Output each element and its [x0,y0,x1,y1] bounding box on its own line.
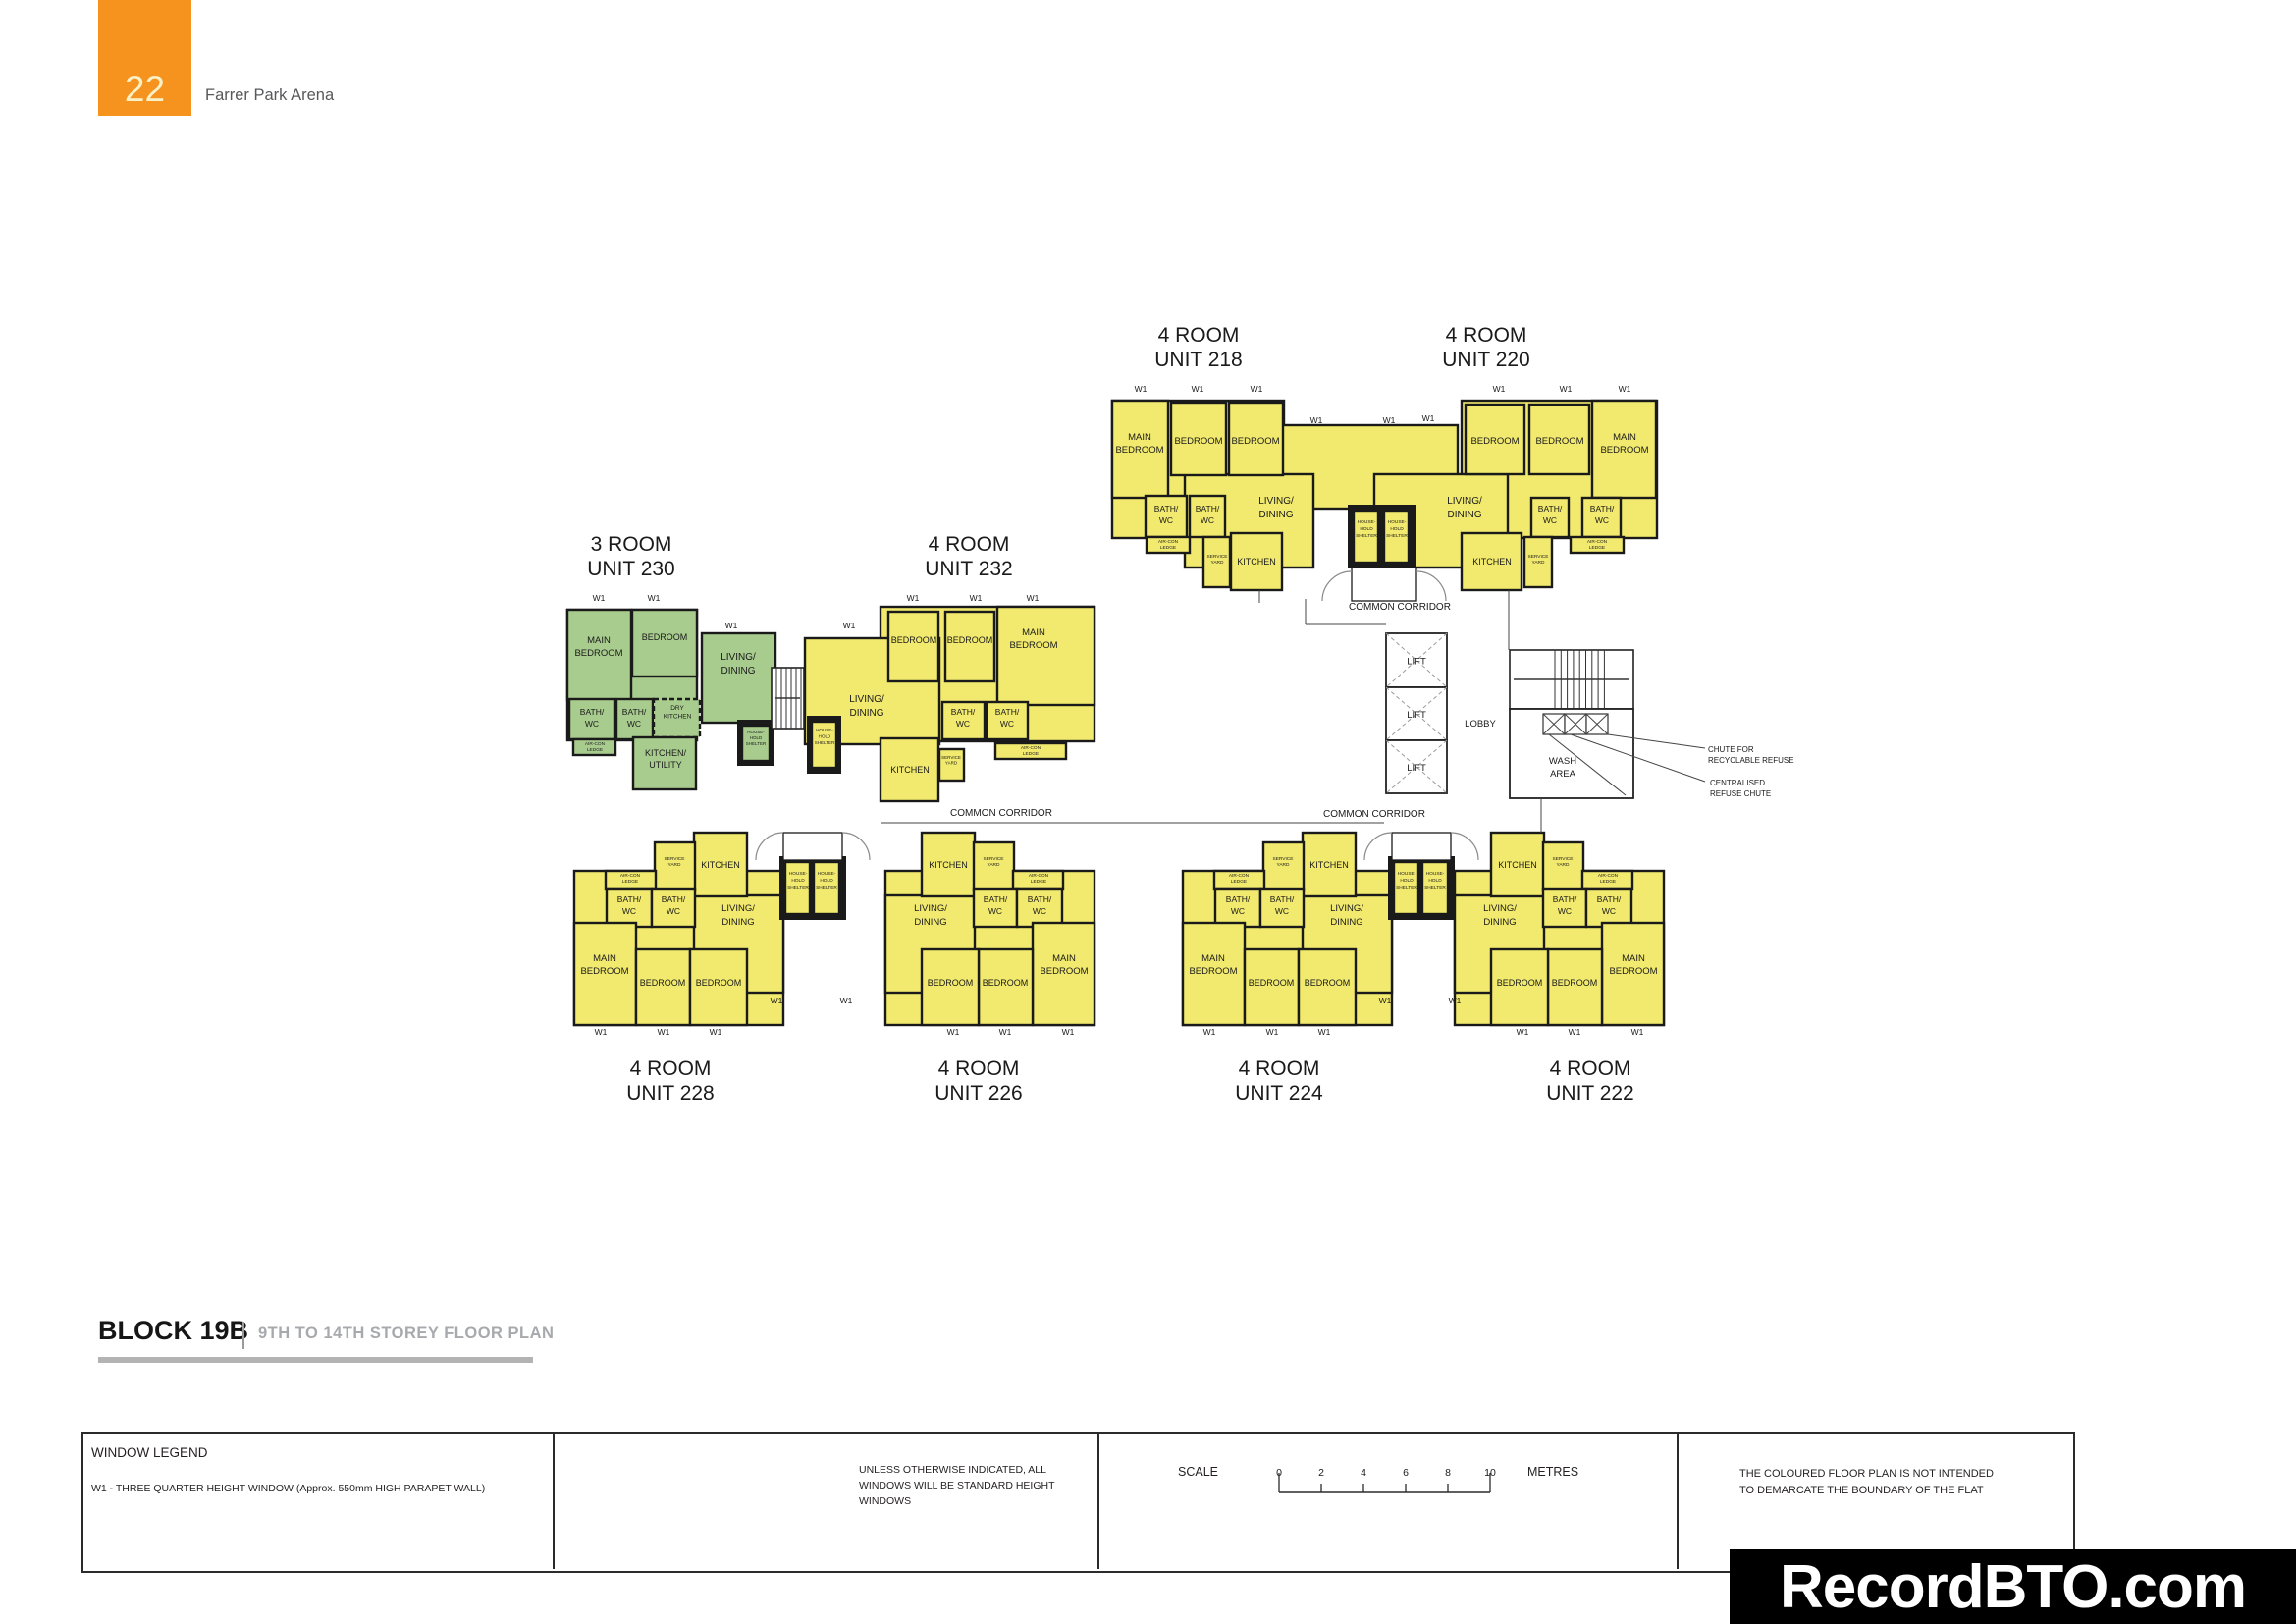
svg-text:CHUTE FOR: CHUTE FOR [1708,745,1754,754]
svg-text:YARD: YARD [1277,862,1291,868]
svg-text:UNIT 220: UNIT 220 [1442,349,1530,371]
svg-text:WC: WC [1201,515,1214,525]
legend-divider-1 [553,1432,555,1569]
svg-text:W1: W1 [1449,996,1462,1005]
svg-text:KITCHEN: KITCHEN [1309,860,1349,870]
window-legend-w1: W1 - THREE QUARTER HEIGHT WINDOW (Approx… [91,1483,485,1494]
svg-text:SHELTER: SHELTER [1356,533,1377,539]
boundary-note-line2: TO DEMARCATE THE BOUNDARY OF THE FLAT [1739,1485,1984,1496]
svg-text:HOUSE-: HOUSE- [816,728,833,732]
svg-text:W1: W1 [970,593,983,603]
svg-text:MAIN: MAIN [593,953,616,964]
svg-text:SHELTER: SHELTER [1386,533,1408,539]
svg-text:LEDGE: LEDGE [1589,545,1605,551]
project-name: Farrer Park Arena [205,86,334,105]
svg-text:BEDROOM: BEDROOM [1600,445,1648,456]
svg-text:BEDROOM: BEDROOM [696,978,742,988]
svg-text:KITCHEN/: KITCHEN/ [645,748,687,758]
svg-text:BEDROOM: BEDROOM [1189,966,1237,977]
svg-text:HOUSE-: HOUSE- [1398,871,1416,877]
floor-plan-page: 22 Farrer Park Arena LIVING/DININGMAINBE… [0,0,2296,1624]
svg-text:UNIT 230: UNIT 230 [587,558,675,580]
svg-text:UNIT 226: UNIT 226 [934,1082,1023,1105]
svg-text:BEDROOM: BEDROOM [1497,978,1543,988]
svg-text:WC: WC [1231,906,1245,916]
svg-text:BEDROOM: BEDROOM [1470,436,1519,447]
svg-text:WC: WC [1159,515,1173,525]
title-divider [242,1322,244,1349]
svg-text:COMMON CORRIDOR: COMMON CORRIDOR [950,808,1052,819]
svg-text:SHELTER: SHELTER [787,885,809,891]
svg-text:WC: WC [622,906,636,916]
svg-text:BATH/: BATH/ [1553,894,1577,904]
svg-text:HOLD: HOLD [1360,526,1373,532]
svg-text:W1: W1 [593,593,606,603]
svg-text:LEDGE: LEDGE [1231,879,1247,885]
block-title: BLOCK 19B [98,1316,248,1346]
svg-text:W1: W1 [999,1027,1012,1037]
svg-text:W1: W1 [725,621,738,630]
svg-text:AIR-CON: AIR-CON [1587,539,1608,545]
svg-text:LIVING/: LIVING/ [914,903,947,914]
svg-text:UNIT 222: UNIT 222 [1546,1082,1634,1105]
svg-text:LIVING/: LIVING/ [1483,903,1517,914]
svg-text:YARD: YARD [945,761,958,766]
svg-text:BATH/: BATH/ [622,707,647,717]
svg-text:DINING: DINING [850,708,884,719]
svg-text:W1: W1 [1251,384,1263,394]
svg-text:BATH/: BATH/ [1028,894,1052,904]
svg-text:BATH/: BATH/ [1590,504,1615,514]
svg-text:W1: W1 [1310,415,1323,425]
svg-text:LEDGE: LEDGE [587,747,603,753]
svg-text:MAIN: MAIN [1128,432,1151,443]
svg-text:SHELTER: SHELTER [816,885,837,891]
svg-text:MAIN: MAIN [1622,953,1645,964]
svg-text:W1: W1 [771,996,783,1005]
svg-text:HOLD: HOLD [1400,878,1414,884]
svg-text:WC: WC [1033,906,1046,916]
svg-text:W1: W1 [1422,413,1435,423]
svg-text:SERVICE: SERVICE [1207,554,1228,560]
svg-text:LEDGE: LEDGE [1160,545,1176,551]
svg-text:WC: WC [627,719,641,729]
svg-text:LEDGE: LEDGE [1031,879,1046,885]
svg-text:BEDROOM: BEDROOM [1174,436,1222,447]
svg-text:BATH/: BATH/ [1597,894,1622,904]
svg-text:KITCHEN: KITCHEN [1498,860,1537,870]
svg-text:LIFT: LIFT [1407,657,1426,668]
svg-text:WASH: WASH [1549,756,1576,767]
svg-text:HOUSE-: HOUSE- [1358,519,1376,525]
svg-text:SERVICE: SERVICE [665,856,685,862]
legend-divider-3 [1677,1432,1679,1569]
svg-text:HOUSE-: HOUSE- [818,871,836,877]
watermark-text: RecordBTO.com [1780,1552,2246,1622]
svg-text:BATH/: BATH/ [580,707,605,717]
scale-label: SCALE [1178,1465,1218,1479]
svg-text:YARD: YARD [1532,560,1546,566]
svg-text:W1: W1 [1560,384,1573,394]
svg-text:LEDGE: LEDGE [622,879,638,885]
svg-text:AIR-CON: AIR-CON [1598,873,1619,879]
svg-text:W1: W1 [843,621,856,630]
svg-text:HOLD: HOLD [819,734,831,739]
svg-text:BATH/: BATH/ [984,894,1008,904]
svg-text:WC: WC [1543,515,1557,525]
svg-text:W1: W1 [1379,996,1392,1005]
svg-text:SHELTER: SHELTER [1396,885,1417,891]
svg-text:BEDROOM: BEDROOM [1249,978,1295,988]
window-legend-heading: WINDOW LEGEND [91,1445,208,1460]
svg-text:UNIT 232: UNIT 232 [925,558,1013,580]
svg-text:SERVICE: SERVICE [941,755,961,760]
svg-text:BEDROOM: BEDROOM [983,978,1029,988]
svg-text:WC: WC [1275,906,1289,916]
svg-text:HOLD: HOLD [1390,526,1404,532]
svg-text:4 ROOM: 4 ROOM [630,1057,712,1080]
svg-text:W1: W1 [1631,1027,1644,1037]
svg-text:LEDGE: LEDGE [1600,879,1616,885]
svg-text:WC: WC [956,719,970,729]
svg-text:LIFT: LIFT [1407,763,1426,774]
svg-text:COMMON CORRIDOR: COMMON CORRIDOR [1323,809,1425,820]
svg-text:WC: WC [1595,515,1609,525]
svg-text:BEDROOM: BEDROOM [947,635,993,645]
svg-text:KITCHEN: KITCHEN [701,860,740,870]
svg-text:HOLD: HOLD [820,878,833,884]
svg-text:4 ROOM: 4 ROOM [1446,324,1527,347]
svg-text:HOLD: HOLD [791,878,805,884]
svg-text:BEDROOM: BEDROOM [640,978,686,988]
svg-text:SHELTER: SHELTER [815,740,835,745]
svg-text:REFUSE CHUTE: REFUSE CHUTE [1710,789,1771,798]
svg-text:BEDROOM: BEDROOM [1305,978,1351,988]
svg-text:W1: W1 [1493,384,1506,394]
svg-text:BEDROOM: BEDROOM [1115,445,1163,456]
svg-text:W1: W1 [1203,1027,1216,1037]
svg-text:4 ROOM: 4 ROOM [929,533,1010,556]
svg-text:DRY: DRY [670,705,684,712]
svg-text:AREA: AREA [1550,769,1576,780]
svg-text:AIR-CON: AIR-CON [620,873,641,879]
svg-text:DINING: DINING [1483,917,1516,928]
svg-text:KITCHEN: KITCHEN [929,860,968,870]
page-number: 22 [98,69,191,110]
svg-text:HOUSE-: HOUSE- [747,730,765,734]
svg-text:LIFT: LIFT [1407,710,1426,721]
svg-text:LIVING/: LIVING/ [721,903,755,914]
svg-text:LIVING/: LIVING/ [1258,496,1294,507]
svg-text:4 ROOM: 4 ROOM [1158,324,1240,347]
svg-text:AIR-CON: AIR-CON [1158,539,1179,545]
svg-text:BEDROOM: BEDROOM [580,966,628,977]
legend-divider-2 [1097,1432,1099,1569]
svg-text:HOUSE-: HOUSE- [789,871,808,877]
windows-note-line2: WINDOWS WILL BE STANDARD HEIGHT [859,1480,1055,1491]
svg-text:LIVING/: LIVING/ [1447,496,1482,507]
svg-text:BEDROOM: BEDROOM [574,648,622,659]
windows-note-line1: UNLESS OTHERWISE INDICATED, ALL [859,1464,1046,1476]
svg-text:BATH/: BATH/ [951,707,976,717]
svg-text:DINING: DINING [721,666,756,677]
svg-text:LIVING/: LIVING/ [849,694,884,705]
svg-text:BEDROOM: BEDROOM [642,632,688,642]
svg-text:HOUSE-: HOUSE- [1388,519,1407,525]
svg-text:MAIN: MAIN [1613,432,1636,443]
svg-text:AIR-CON: AIR-CON [1029,873,1049,879]
svg-text:BATH/: BATH/ [617,894,642,904]
svg-text:W1: W1 [658,1027,670,1037]
svg-text:4 ROOM: 4 ROOM [1550,1057,1631,1080]
svg-text:BEDROOM: BEDROOM [928,978,974,988]
svg-text:4 ROOM: 4 ROOM [938,1057,1020,1080]
svg-text:W1: W1 [1027,593,1040,603]
svg-text:YARD: YARD [668,862,682,868]
windows-note-line3: WINDOWS [859,1495,911,1507]
svg-text:UNIT 218: UNIT 218 [1154,349,1243,371]
svg-text:CENTRALISED: CENTRALISED [1710,779,1765,787]
svg-text:BEDROOM: BEDROOM [1009,640,1057,651]
svg-text:W1: W1 [1266,1027,1279,1037]
svg-text:BEDROOM: BEDROOM [1231,436,1279,447]
svg-text:DINING: DINING [914,917,946,928]
svg-text:BATH/: BATH/ [995,707,1020,717]
svg-text:W1: W1 [710,1027,722,1037]
svg-text:SERVICE: SERVICE [984,856,1004,862]
svg-text:BATH/: BATH/ [1196,504,1220,514]
svg-text:BEDROOM: BEDROOM [1040,966,1088,977]
svg-text:YARD: YARD [1557,862,1571,868]
svg-text:W1: W1 [1192,384,1204,394]
svg-text:BATH/: BATH/ [1154,504,1179,514]
svg-text:BEDROOM: BEDROOM [1609,966,1657,977]
svg-text:BEDROOM: BEDROOM [1552,978,1598,988]
svg-text:SERVICE: SERVICE [1553,856,1574,862]
svg-text:MAIN: MAIN [1052,953,1076,964]
svg-text:WC: WC [667,906,680,916]
svg-text:KITCHEN: KITCHEN [890,765,930,775]
svg-text:COMMON CORRIDOR: COMMON CORRIDOR [1349,602,1451,613]
svg-text:DINING: DINING [721,917,754,928]
floor-plan-drawing: LIVING/DININGMAINBEDROOMBEDROOMBEDROOMBA… [0,0,2296,1624]
svg-text:WC: WC [1602,906,1616,916]
svg-text:SERVICE: SERVICE [1273,856,1294,862]
svg-text:LEDGE: LEDGE [1023,751,1039,757]
svg-text:W1: W1 [648,593,661,603]
svg-text:WC: WC [988,906,1002,916]
svg-text:LOBBY: LOBBY [1465,719,1496,730]
svg-text:BATH/: BATH/ [1270,894,1295,904]
svg-text:BATH/: BATH/ [1226,894,1251,904]
title-underline [98,1357,533,1363]
svg-text:W1: W1 [1135,384,1148,394]
boundary-note-line1: THE COLOURED FLOOR PLAN IS NOT INTENDED [1739,1468,1994,1480]
svg-text:BEDROOM: BEDROOM [891,635,937,645]
svg-text:DINING: DINING [1448,510,1482,520]
svg-text:WC: WC [1558,906,1572,916]
svg-text:LIVING/: LIVING/ [1330,903,1363,914]
svg-text:W1: W1 [595,1027,608,1037]
metres-label: METRES [1527,1465,1578,1479]
svg-text:RECYCLABLE REFUSE: RECYCLABLE REFUSE [1708,756,1794,765]
svg-text:BATH/: BATH/ [662,894,686,904]
svg-text:DINING: DINING [1330,917,1362,928]
svg-text:HOUSE-: HOUSE- [1426,871,1445,877]
svg-text:AIR-CON: AIR-CON [1021,745,1041,751]
svg-text:W1: W1 [1619,384,1631,394]
svg-text:4 ROOM: 4 ROOM [1239,1057,1320,1080]
svg-text:W1: W1 [1569,1027,1581,1037]
svg-text:DINING: DINING [1259,510,1294,520]
svg-text:BEDROOM: BEDROOM [1535,436,1583,447]
svg-text:W1: W1 [947,1027,960,1037]
svg-text:KITCHEN: KITCHEN [664,714,692,721]
svg-text:SERVICE: SERVICE [1528,554,1549,560]
svg-text:WC: WC [585,719,599,729]
svg-text:KITCHEN: KITCHEN [1237,557,1276,567]
svg-text:WC: WC [1000,719,1014,729]
svg-text:3 ROOM: 3 ROOM [591,533,672,556]
svg-text:AIR-CON: AIR-CON [585,741,606,747]
svg-text:W1: W1 [840,996,853,1005]
svg-text:AIR-CON: AIR-CON [1229,873,1250,879]
svg-text:UNIT 228: UNIT 228 [626,1082,715,1105]
svg-text:HOLD: HOLD [750,735,763,740]
svg-text:W1: W1 [1318,1027,1331,1037]
svg-text:W1: W1 [1517,1027,1529,1037]
svg-text:UTILITY: UTILITY [649,760,682,770]
storey-subtitle: 9TH TO 14TH STOREY FLOOR PLAN [258,1325,554,1343]
svg-text:YARD: YARD [988,862,1001,868]
svg-text:UNIT 224: UNIT 224 [1235,1082,1323,1105]
watermark-banner: RecordBTO.com [1730,1549,2296,1624]
svg-text:MAIN: MAIN [1022,627,1045,638]
svg-text:HOLD: HOLD [1428,878,1442,884]
svg-text:MAIN: MAIN [1201,953,1225,964]
svg-text:YARD: YARD [1211,560,1225,566]
svg-text:W1: W1 [907,593,920,603]
svg-text:BATH/: BATH/ [1538,504,1563,514]
svg-text:KITCHEN: KITCHEN [1472,557,1512,567]
svg-text:W1: W1 [1383,415,1396,425]
svg-text:W1: W1 [1062,1027,1075,1037]
svg-text:SHELTER: SHELTER [746,741,767,746]
svg-text:LIVING/: LIVING/ [721,652,756,663]
svg-text:SHELTER: SHELTER [1424,885,1446,891]
svg-text:MAIN: MAIN [587,635,611,646]
